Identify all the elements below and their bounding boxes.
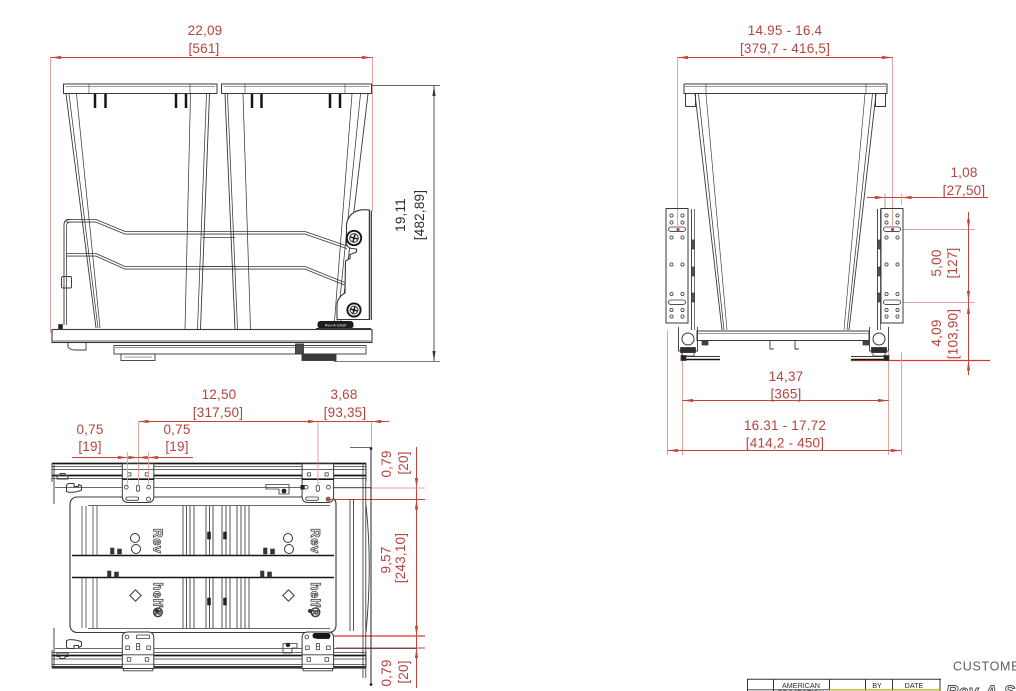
svg-text:0,79: 0,79 — [379, 659, 394, 686]
svg-text:[482,89]: [482,89] — [412, 190, 427, 240]
svg-text:14,37: 14,37 — [769, 369, 804, 384]
svg-text:[19]: [19] — [78, 439, 101, 454]
svg-text:Rev: Rev — [151, 528, 166, 554]
svg-text:BY: BY — [872, 681, 882, 690]
svg-text:9,57: 9,57 — [379, 546, 394, 573]
svg-text:[379,7 - 416,5]: [379,7 - 416,5] — [740, 41, 830, 56]
svg-text:0,79: 0,79 — [379, 450, 394, 477]
svg-text:[27,50]: [27,50] — [943, 183, 986, 198]
svg-text:1,08: 1,08 — [950, 165, 977, 180]
svg-text:[20]: [20] — [396, 451, 411, 474]
svg-text:14.95 - 16.4: 14.95 - 16.4 — [748, 23, 823, 38]
svg-text:[414,2 - 450]: [414,2 - 450] — [746, 436, 824, 451]
svg-text:19,11: 19,11 — [393, 198, 408, 232]
svg-text:Rev: Rev — [308, 528, 323, 554]
svg-text:[561]: [561] — [188, 41, 219, 56]
svg-text:22,09: 22,09 — [188, 23, 223, 38]
svg-text:[19]: [19] — [165, 439, 188, 454]
svg-text:4,09: 4,09 — [929, 319, 944, 346]
svg-text:[20]: [20] — [396, 660, 411, 683]
svg-text:[243,10]: [243,10] — [393, 533, 408, 583]
svg-text:DATE: DATE — [905, 681, 924, 690]
svg-text:3,68: 3,68 — [330, 387, 357, 402]
svg-text:[317,50]: [317,50] — [193, 405, 243, 420]
svg-text:CUSTOMER: CUSTOMER — [953, 660, 1016, 674]
svg-text:[103,90]: [103,90] — [946, 309, 961, 359]
svg-text:[127]: [127] — [945, 247, 960, 278]
svg-text:0,75: 0,75 — [76, 422, 103, 437]
svg-text:5,00: 5,00 — [929, 249, 944, 276]
svg-text:Rev-A-Shelf: Rev-A-Shelf — [325, 323, 347, 328]
svg-text:Rev-A-Sh: Rev-A-Sh — [946, 682, 1016, 691]
svg-text:0,75: 0,75 — [163, 422, 190, 437]
svg-text:[93,35]: [93,35] — [324, 405, 367, 420]
svg-text:[365]: [365] — [770, 387, 801, 402]
svg-text:16.31 - 17.72: 16.31 - 17.72 — [744, 418, 826, 433]
svg-text:12,50: 12,50 — [202, 387, 237, 402]
